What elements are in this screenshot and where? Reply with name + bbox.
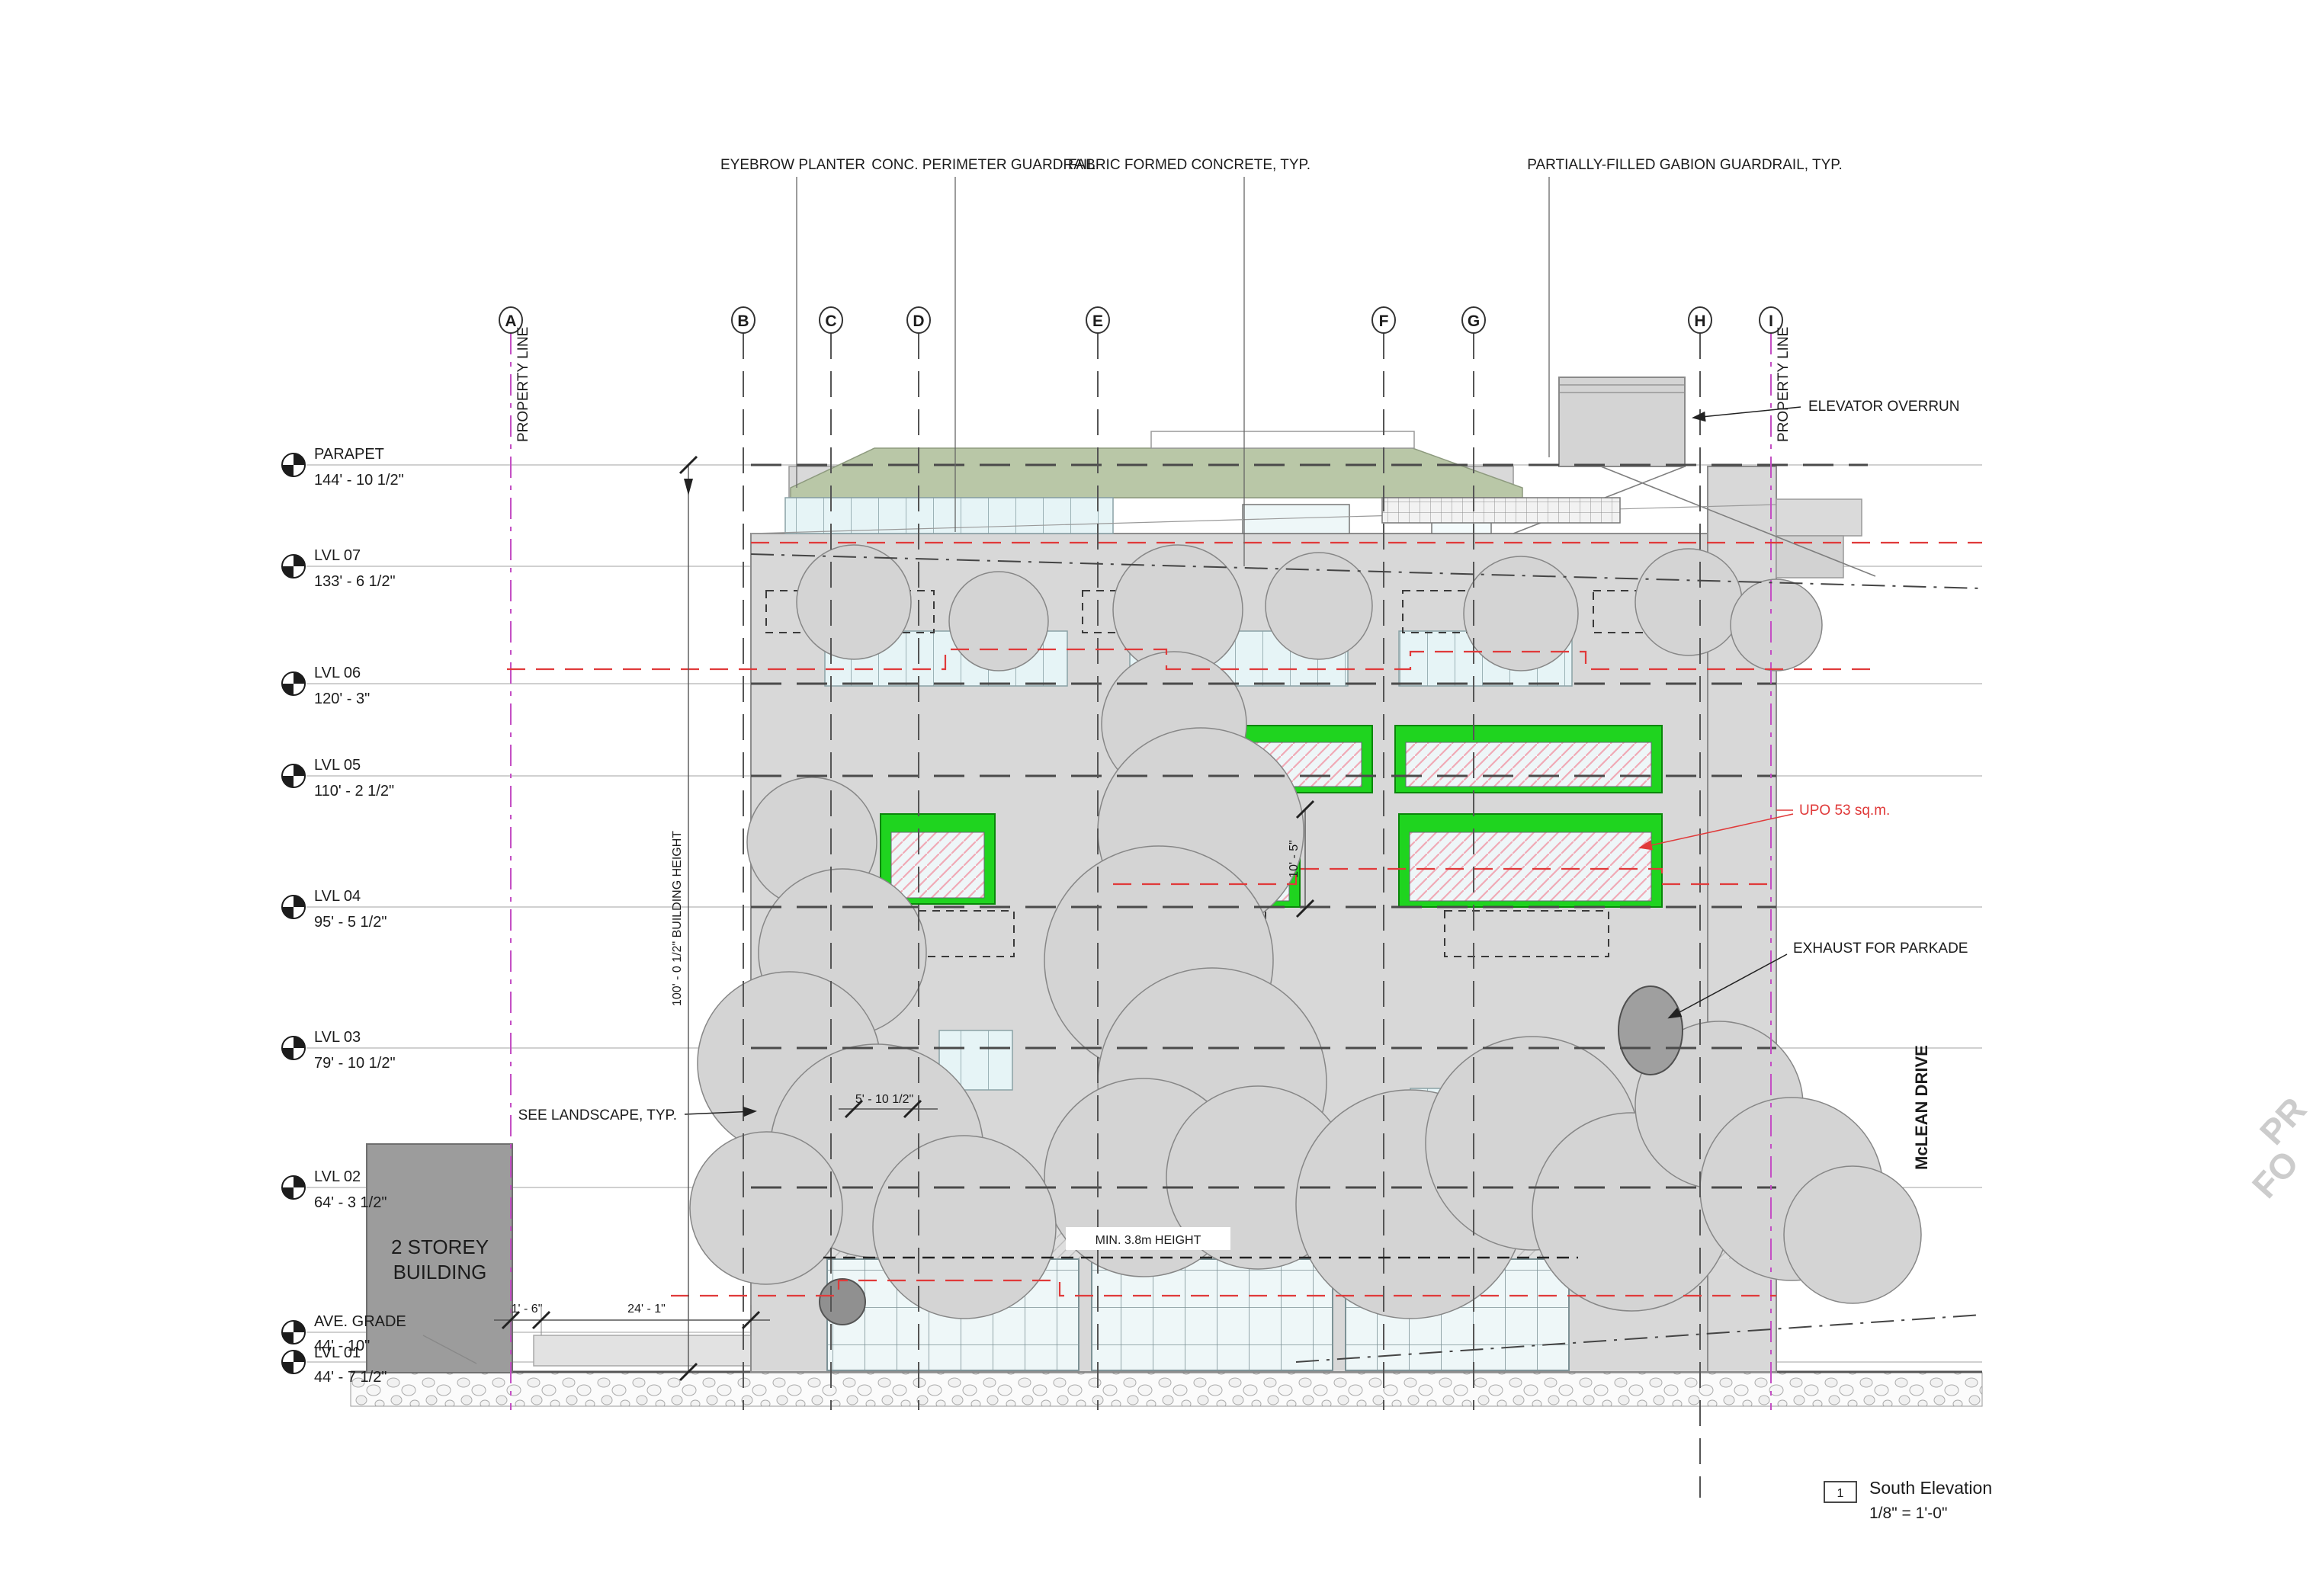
- dim-5-10: 5' - 10 1/2": [855, 1093, 913, 1106]
- svg-text:AVE. GRADE: AVE. GRADE: [314, 1313, 406, 1330]
- watermark-line1: PR: [2252, 1089, 2313, 1152]
- property-line-label-left: PROPERTY LINE: [515, 327, 531, 442]
- svg-text:79' - 10 1/2": 79' - 10 1/2": [314, 1055, 396, 1072]
- svg-text:LVL 03: LVL 03: [314, 1029, 361, 1046]
- roof-cap: [1151, 431, 1414, 448]
- svg-text:I: I: [1769, 312, 1773, 330]
- level-datum: LVL 04 95' - 5 1/2": [282, 888, 387, 931]
- dim-1-6: 1' - 6": [512, 1303, 543, 1316]
- level-datum: LVL 05 110' - 2 1/2": [282, 757, 394, 800]
- neighbour-label-line2: BUILDING: [393, 1261, 487, 1284]
- elevation-sheet: 2 STOREY BUILDING: [0, 0, 2313, 1596]
- see-landscape-label: SEE LANDSCAPE, TYP.: [518, 1107, 677, 1123]
- svg-text:44' - 7 1/2": 44' - 7 1/2": [314, 1369, 387, 1386]
- gabion-guardrail: [1382, 498, 1620, 523]
- green-roof: [791, 448, 1522, 498]
- elevator-overrun: [1559, 377, 1685, 466]
- level-name: PARAPET: [314, 446, 384, 463]
- view-scale: 1/8" = 1'-0": [1869, 1505, 1947, 1522]
- street-name-label: McLEAN DRIVE: [1912, 1045, 1931, 1170]
- svg-text:G: G: [1468, 312, 1480, 330]
- dim-10-5: 10' - 5": [1288, 840, 1301, 878]
- callout-perimeter-guardrail: CONC. PERIMETER GUARDRAIL: [871, 157, 1095, 173]
- svg-text:F: F: [1379, 312, 1389, 330]
- exhaust-blob: [1618, 986, 1683, 1075]
- building-height-dimension: 100' - 0 1/2" BUILDING HEIGHT: [671, 457, 697, 1380]
- grid-bubble: F: [1372, 307, 1395, 333]
- svg-text:H: H: [1694, 312, 1705, 330]
- svg-text:LVL 05: LVL 05: [314, 757, 361, 774]
- svg-text:LVL 04: LVL 04: [314, 888, 361, 905]
- svg-text:64' - 3 1/2": 64' - 3 1/2": [314, 1194, 387, 1211]
- svg-text:LVL 02: LVL 02: [314, 1168, 361, 1185]
- dim-24-1: 24' - 1": [627, 1303, 666, 1316]
- svg-text:120' - 3": 120' - 3": [314, 691, 370, 707]
- grid-bubble: G: [1462, 307, 1485, 333]
- grid-bubble: C: [820, 307, 842, 333]
- svg-text:C: C: [825, 312, 836, 330]
- grid-bubble: B: [732, 307, 755, 333]
- upo-window: [1399, 814, 1662, 907]
- upo-area-label: UPO 53 sq.m.: [1799, 803, 1890, 819]
- level-datum: PARAPET 144' - 10 1/2": [282, 446, 404, 489]
- elevator-overrun-label: ELEVATOR OVERRUN: [1808, 399, 1960, 415]
- view-title-text: South Elevation: [1869, 1478, 1992, 1498]
- svg-text:D: D: [913, 312, 924, 330]
- grid-bubble: E: [1086, 307, 1109, 333]
- min-height-label: MIN. 3.8m HEIGHT: [1096, 1234, 1201, 1247]
- right-roof-step: [1776, 499, 1862, 536]
- level-datum: LVL 07 133' - 6 1/2": [282, 547, 396, 590]
- view-number: 1: [1837, 1487, 1844, 1500]
- view-title: 1 South Elevation 1/8" = 1'-0": [1824, 1478, 1992, 1522]
- svg-text:LVL 07: LVL 07: [314, 547, 361, 564]
- dim-building-height: 100' - 0 1/2" BUILDING HEIGHT: [671, 831, 684, 1006]
- elevation-drawing: 2 STOREY BUILDING: [0, 0, 2313, 1596]
- ground: [351, 1372, 1982, 1406]
- svg-text:110' - 2 1/2": 110' - 2 1/2": [314, 783, 394, 800]
- neighbour-label-line1: 2 STOREY: [391, 1235, 489, 1258]
- svg-text:B: B: [737, 312, 749, 330]
- svg-text:LVL 01: LVL 01: [314, 1344, 361, 1361]
- level-elevation: 144' - 10 1/2": [314, 472, 404, 489]
- property-line-label-right: PROPERTY LINE: [1776, 327, 1792, 442]
- svg-text:E: E: [1092, 312, 1103, 330]
- upo-window: [1395, 726, 1662, 793]
- watermark-line2: FO: [2244, 1143, 2306, 1205]
- svg-text:LVL 06: LVL 06: [314, 665, 361, 681]
- callout-fabric-concrete: FABRIC FORMED CONCRETE, TYP.: [1068, 157, 1310, 173]
- tree-trunk-section: [820, 1279, 865, 1325]
- watermark: PR FO: [2244, 1089, 2313, 1205]
- setback-dimension: 1' - 6" 24' - 1": [494, 1303, 770, 1335]
- neighbour-building: 2 STOREY BUILDING: [367, 1144, 512, 1373]
- grid-bubble: D: [907, 307, 930, 333]
- callout-gabion-guardrail: PARTIALLY-FILLED GABION GUARDRAIL, TYP.: [1527, 157, 1843, 173]
- level-datum: LVL 03 79' - 10 1/2": [282, 1029, 396, 1072]
- exhaust-parkade-label: EXHAUST FOR PARKADE: [1793, 941, 1968, 957]
- svg-text:133' - 6 1/2": 133' - 6 1/2": [314, 573, 396, 590]
- callout-eyebrow-planter: EYEBROW PLANTER: [720, 157, 865, 173]
- datum-icon: [282, 453, 305, 476]
- level-datum: LVL 06 120' - 3": [282, 665, 370, 707]
- svg-text:95' - 5 1/2": 95' - 5 1/2": [314, 914, 387, 931]
- grid-bubble: H: [1689, 307, 1711, 333]
